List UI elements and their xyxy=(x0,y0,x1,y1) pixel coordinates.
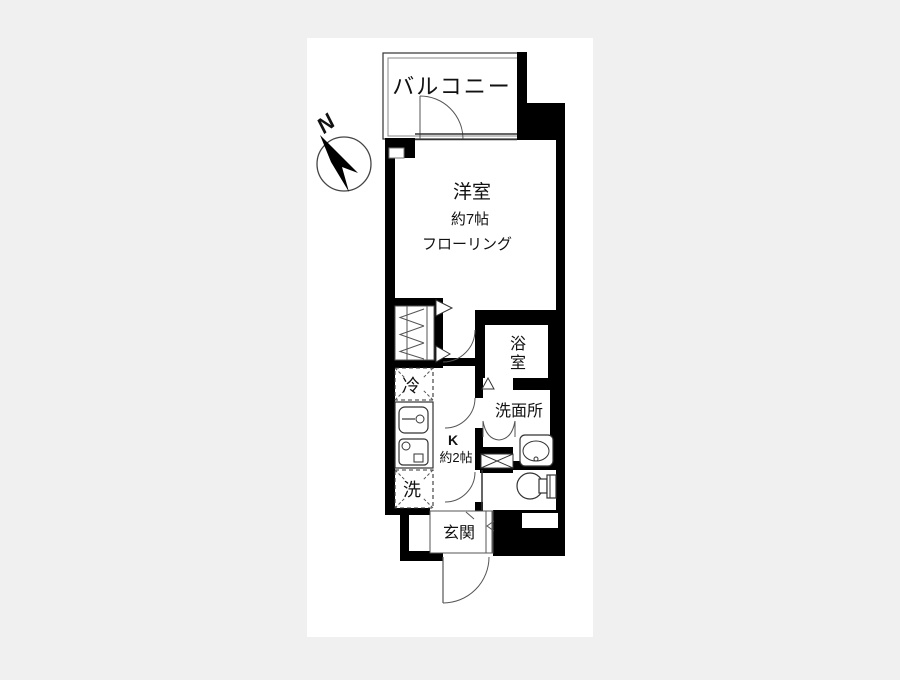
wall-inner-bar-bottom xyxy=(480,468,513,473)
washer-label: 洗 xyxy=(403,480,421,500)
washer-space: 洗 xyxy=(395,470,433,508)
fridge-space: 冷 xyxy=(395,368,433,400)
floorplan-svg: N バルコニー xyxy=(0,0,900,675)
room-flooring-label: フローリング xyxy=(422,236,512,253)
room-size-label: 約7帖 xyxy=(451,211,489,228)
room-label: 洋室 xyxy=(453,181,491,203)
kitchen-counter xyxy=(395,402,433,468)
pipe-space-box xyxy=(481,454,513,468)
washroom-label: 洗面所 xyxy=(495,402,543,420)
bathroom-label-char2: 室 xyxy=(510,354,526,372)
toilet-icon xyxy=(517,473,556,499)
entrance-label: 玄関 xyxy=(443,524,475,542)
bathroom-label-char1: 浴 xyxy=(510,335,526,353)
kitchen-size-label: 約2帖 xyxy=(439,450,472,465)
wall-bathroom-left xyxy=(475,310,485,378)
washbasin-icon xyxy=(520,435,553,466)
wall-closet-bottom xyxy=(385,360,443,368)
kitchen-label: K xyxy=(448,432,458,448)
bottomright-notch xyxy=(522,513,558,528)
toilet-tank xyxy=(547,475,556,498)
toilet-seat-hinge xyxy=(539,479,547,493)
topleft-notch xyxy=(389,148,404,158)
wall-left xyxy=(385,148,395,515)
balcony-label: バルコニー xyxy=(392,74,512,99)
wall-topright-block xyxy=(517,103,565,140)
wall-inner-bar-top xyxy=(480,447,513,454)
wall-washroom-left-upper xyxy=(475,378,483,398)
floorplan-image: N バルコニー xyxy=(0,0,900,675)
fridge-label: 冷 xyxy=(402,376,420,396)
wall-entrance-left xyxy=(400,510,409,555)
